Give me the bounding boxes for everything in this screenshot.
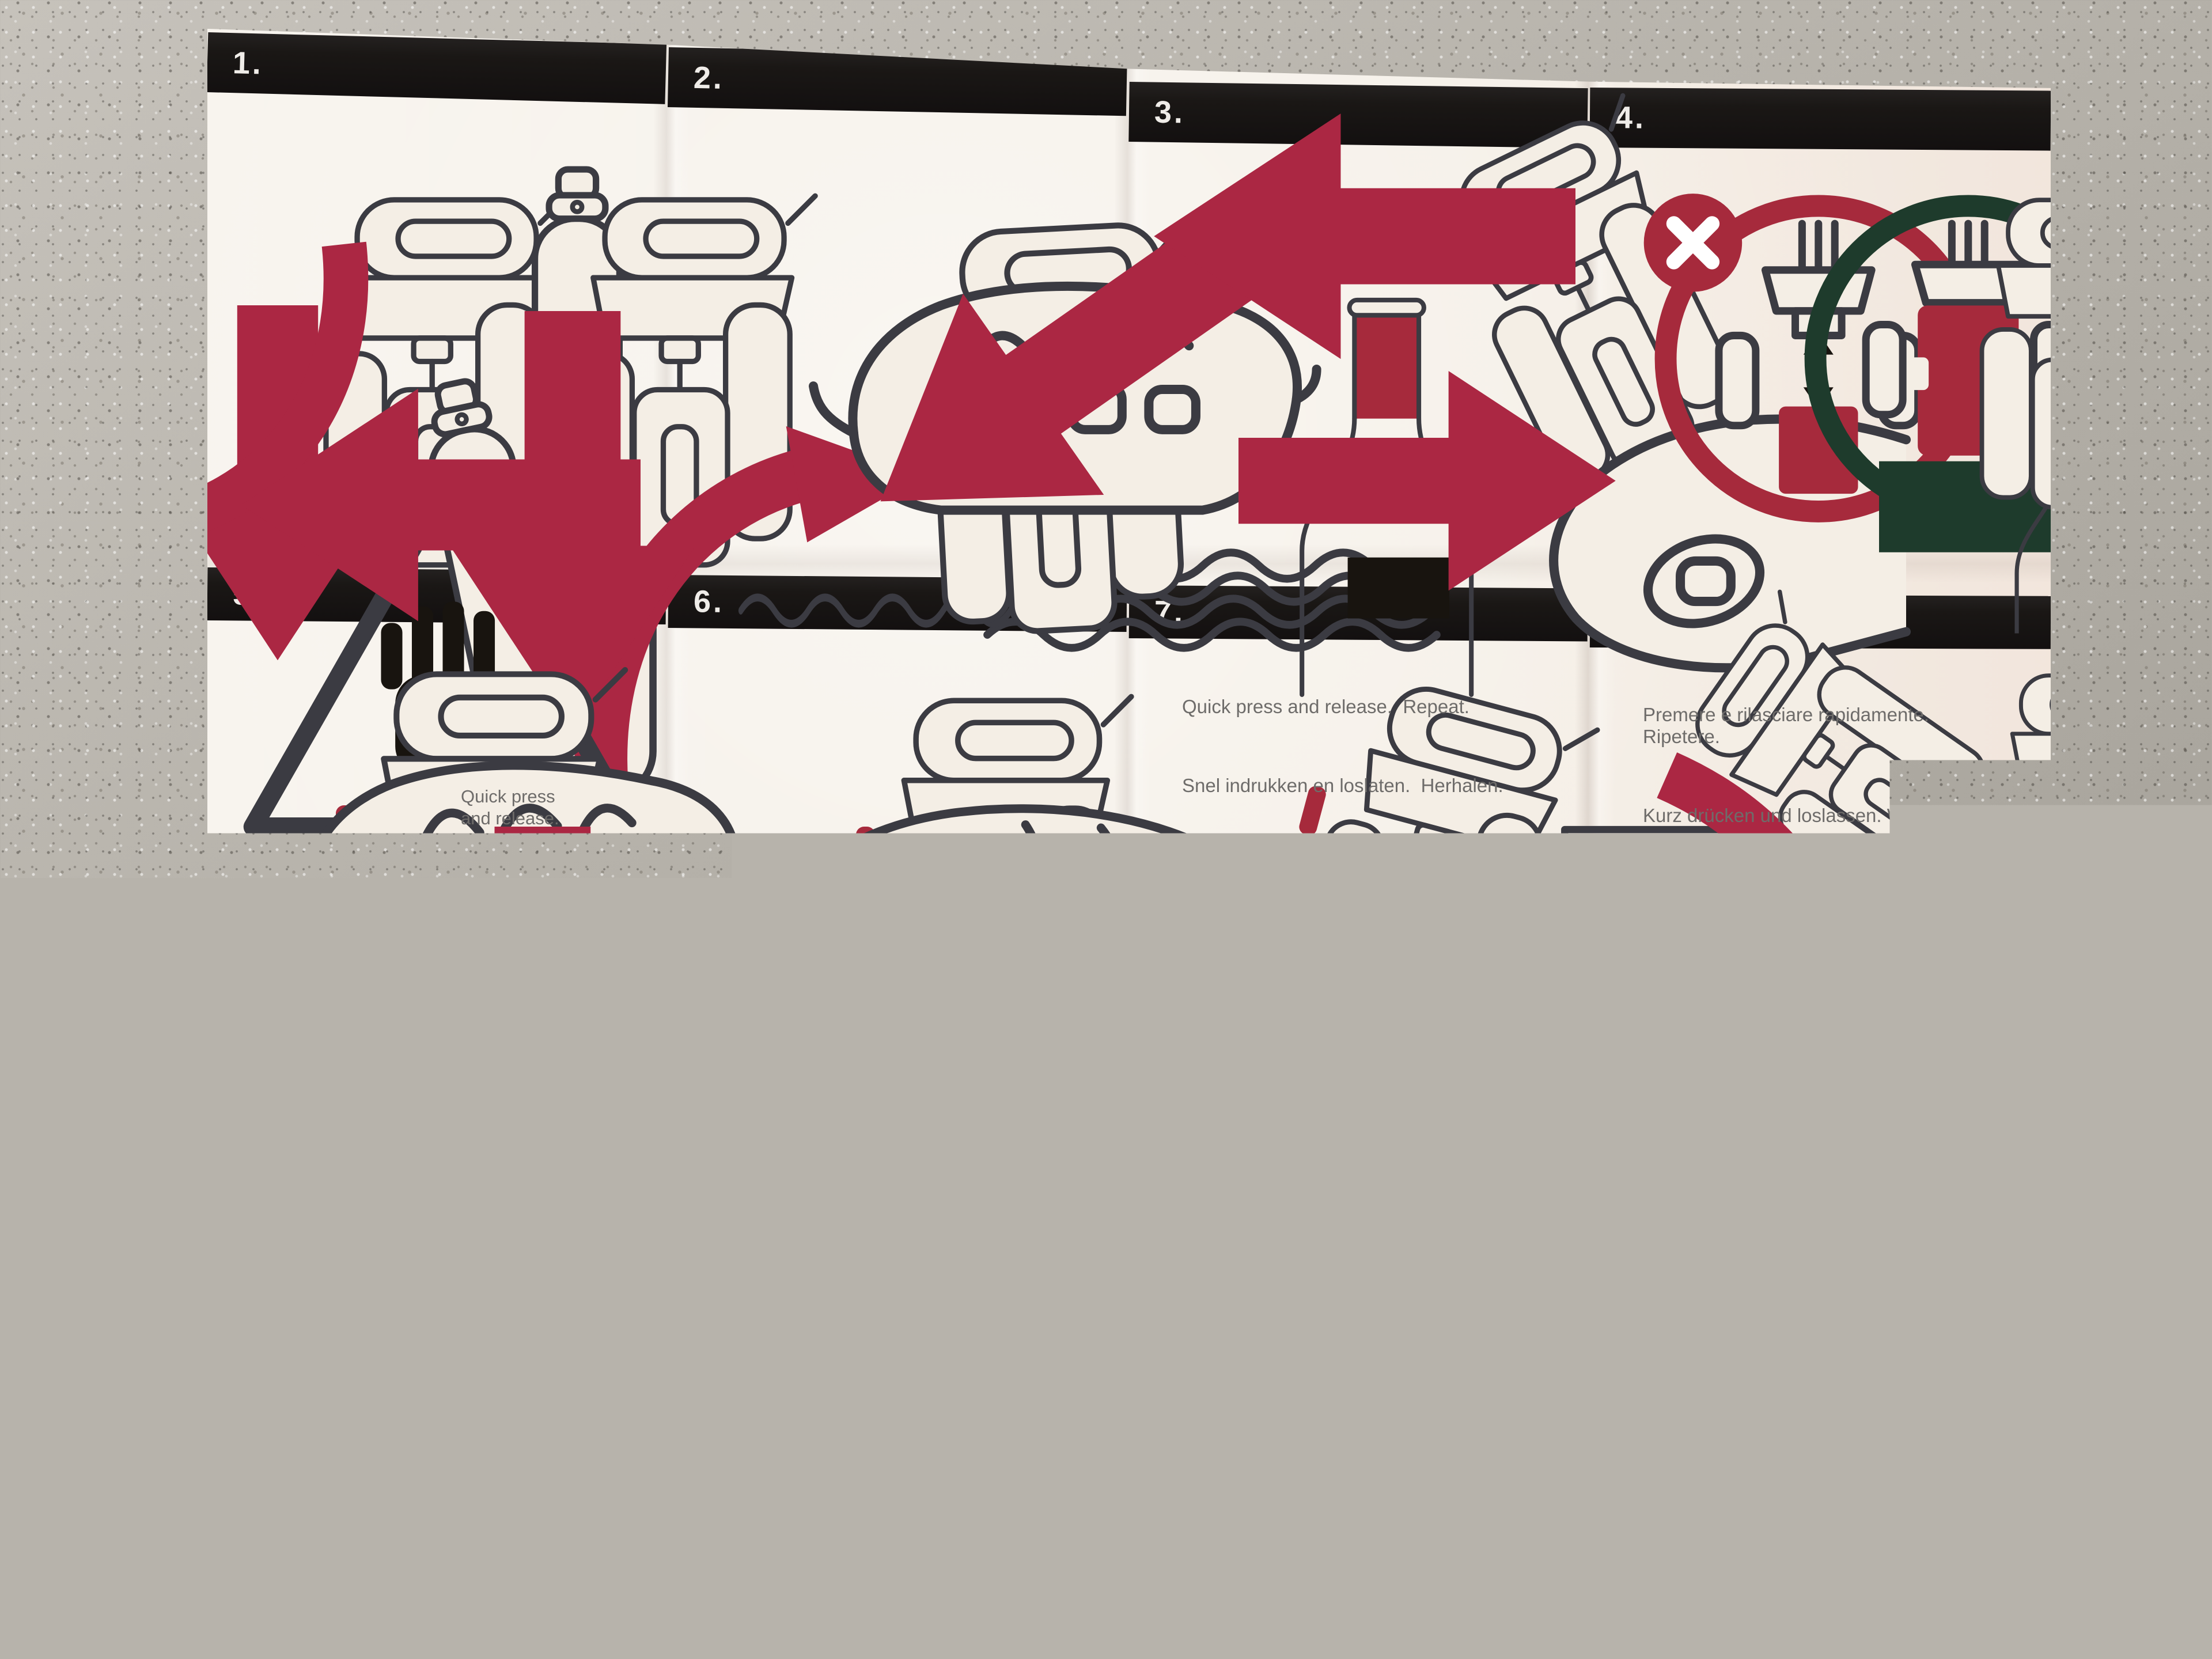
cleaning-word: SCHOONMAKEN <box>1158 1291 1365 1317</box>
step7-caption: Quick press and release. Repeat. Snel in… <box>1182 652 1562 955</box>
caption-line: Appuyez brièvement <box>461 979 624 999</box>
caption-line: and release. <box>1871 1385 1969 1406</box>
caption-line: rapidamente. <box>461 1097 565 1117</box>
cleaning-word: NETTOYAGE <box>1158 1369 1365 1395</box>
repeat-caption-right: Premere e rilasciare rapidamente. Ripete… <box>1643 660 2012 984</box>
caption-line: and release. <box>461 808 559 828</box>
caption-line: Premere e rilasciare rapidamente. Ripete… <box>1643 704 2012 748</box>
caption-line: Snel indrukken <box>461 882 579 903</box>
caption-line: Kurz drücken und loslassen. Wiederholen. <box>1643 805 2012 827</box>
step4-illustration <box>1596 158 2045 559</box>
photo-of-instruction-leaflet: { "scene": { "description": "Folded mult… <box>0 0 2212 1659</box>
rinse-under-tap-icon <box>1439 1159 1500 1220</box>
step-number-8: 8. <box>207 1095 264 1156</box>
caption-line: Kurz drücken <box>461 1171 566 1191</box>
care-icon-row <box>1369 1159 1570 1220</box>
step-bar-1: 1. <box>207 32 666 104</box>
caption-line: Appuyez brièvement et relâchez. Répétez … <box>1182 854 1562 897</box>
step-number-1: 1. <box>207 32 264 94</box>
cleaning-word: PULIZIA <box>1158 1446 1365 1472</box>
caption-line: en loslaten. <box>1871 1482 1963 1502</box>
wine-device-icon <box>1998 673 2179 949</box>
step-bar-2: 2. <box>668 47 1127 116</box>
instruction-leaflet: 1. 2. 3. 4. 5. 6. 7. 8. 9. <box>207 29 2051 1630</box>
caption-line: Quick press <box>1871 1363 1965 1384</box>
step6-illustration <box>674 637 1123 1083</box>
step-bar-3: 3. <box>1128 82 1588 148</box>
caption-line: Quick press and release. Repeat. <box>1182 696 1562 718</box>
cork-through-window <box>1945 329 1962 368</box>
step9-illustration <box>674 1149 1123 1613</box>
step-number-3: 3. <box>1128 82 1185 142</box>
caption-line: Snel indrukken en loslaten. Herhalen. <box>1182 775 1562 797</box>
caption-line: Quick press <box>461 786 555 806</box>
cleaning-title: CLEANING SCHOONMAKEN NETTOYAGE PULIZIA R… <box>1158 1161 1365 1659</box>
no-machine-wash-icon <box>1369 1159 1430 1220</box>
caption-line: Snel indrukken <box>1871 1460 1989 1480</box>
caption-line: en loslaten. <box>461 904 552 925</box>
step-bar-9: 9. <box>668 1089 1127 1143</box>
caption-line: y suelte. <box>461 1289 527 1309</box>
wine-device-icon <box>1982 197 2186 507</box>
caption-line: et relâchez. <box>1871 1600 1963 1620</box>
caption-line: Apriete rápido y suelte. Repita la opera… <box>1643 884 2012 927</box>
wipe-by-hand-icon <box>1509 1159 1570 1220</box>
step-bar-4: 4. <box>1590 88 2051 151</box>
caption-line: Appuyez brièvement <box>1871 1556 1959 1598</box>
caption-line: und loslassen. <box>461 1193 575 1213</box>
cleaning-word: LIMPIEZA <box>1158 1602 1365 1628</box>
caption-line: Premere e rilasciare <box>461 1075 620 1095</box>
wine-bottle-icon <box>2031 796 2168 1115</box>
step-number-9: 9. <box>668 1092 725 1152</box>
step-number-2: 2. <box>668 47 725 108</box>
caption-line: Apriete rápido <box>461 1267 572 1287</box>
clean-press-caption: Quick pressand release. Snel indrukkenen… <box>1871 1319 2032 1659</box>
step3-illustration <box>1135 153 1584 559</box>
cleaning-word: CLEANING <box>1158 1213 1365 1239</box>
caption-line: et relâchez. <box>461 1001 553 1021</box>
step5-caption: Quick pressand release. Snel indrukkenen… <box>461 742 645 1363</box>
cleaning-word: REINIGUNG <box>1158 1524 1365 1550</box>
